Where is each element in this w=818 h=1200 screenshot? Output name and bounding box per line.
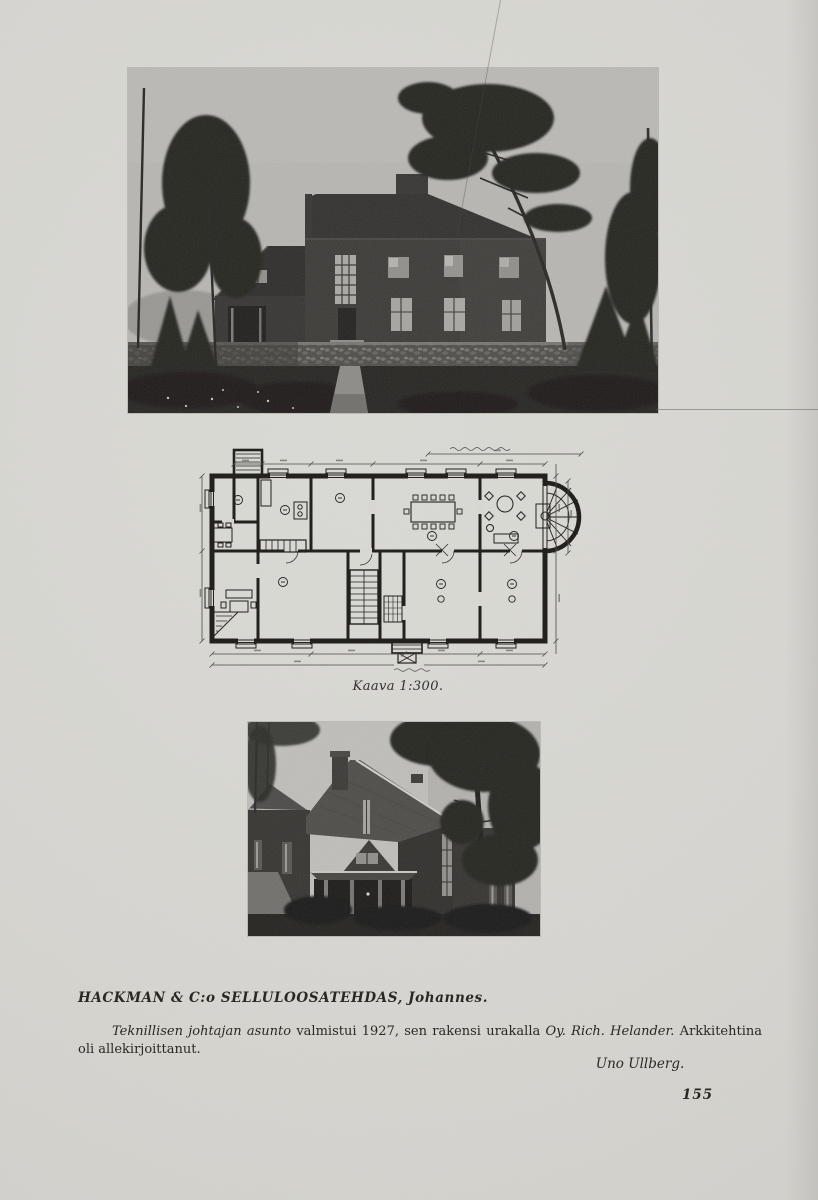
body-segment-italic: Oy. Rich. Helander. (546, 1024, 675, 1039)
vestibule-floor (384, 596, 402, 622)
architect-signature: Uno Ullberg. (520, 1056, 760, 1072)
salon-furniture (485, 492, 525, 543)
paper-fold-line (656, 409, 818, 410)
dimension-figures (200, 450, 572, 663)
floor-plan-drawing (198, 444, 594, 678)
kitchen-fittings (214, 480, 307, 547)
article-heading: HACKMAN & C:o SELLULOOSATEHDAS, Johannes… (78, 990, 488, 1006)
entry-steps (392, 641, 430, 671)
service-stair (234, 450, 262, 476)
body-segment-italic: Teknillisen johtajan asunto (112, 1024, 291, 1039)
scanned-page: Kaava 1:300. (0, 0, 818, 1200)
body-segment: valmistui 1927, sen rakensi urakalla (291, 1024, 545, 1039)
bottom-photo (248, 722, 540, 936)
main-staircase (350, 570, 378, 624)
top-photo-art (128, 68, 658, 413)
top-photo (128, 68, 658, 413)
article-paragraph: Teknillisen johtajan asunto valmistui 19… (78, 1023, 762, 1058)
plan-caption: Kaava 1:300. (300, 679, 496, 694)
floor-plan-art (198, 444, 594, 678)
page-number: 155 (682, 1087, 713, 1103)
photo-grain (248, 722, 540, 936)
photo-grain (128, 68, 658, 413)
apse-bay (542, 483, 580, 551)
sitting-room-furniture (214, 590, 256, 636)
dining-table (404, 495, 462, 529)
handwritten-signature (394, 669, 430, 672)
bottom-photo-art (248, 722, 540, 936)
